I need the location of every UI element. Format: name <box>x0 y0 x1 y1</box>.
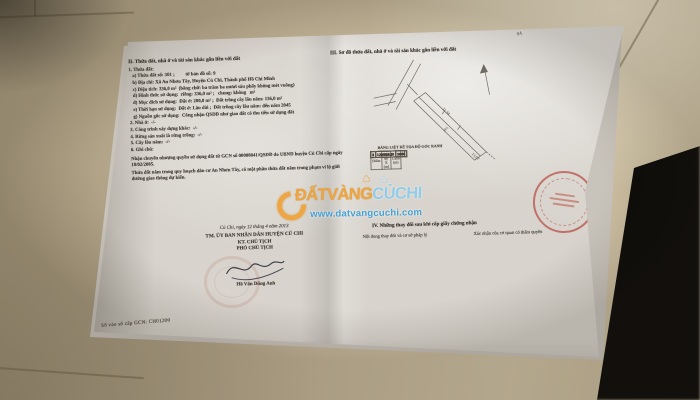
watermark-brand: ĐẤTVÀNGCỦCHI <box>294 184 422 205</box>
edge-cell: 30.61 <box>395 150 406 157</box>
page-left-body: II. Thửa đất, nhà ở và tài sản khác gắn … <box>128 53 344 186</box>
tile-grout-line <box>0 12 134 19</box>
brand-blue-text: CỦCHI <box>372 184 422 203</box>
tile-grout-line <box>0 367 144 379</box>
edge-length-label: 31.94 <box>441 106 451 116</box>
faint-round-seal <box>204 256 260 308</box>
coordinate-row: 6 1208989.85 30.61 <box>370 150 407 159</box>
photo-of-land-certificate: II. Thửa đất, nhà ở và tài sản khác gắn … <box>0 0 700 400</box>
brand-orange-text: ĐẤTVÀNG <box>294 185 372 204</box>
x-cell: 1208989.85 <box>375 151 395 158</box>
house-icon: ⌂ <box>362 171 370 184</box>
watermark-url: www.datvangcuchi.com <box>310 207 422 220</box>
house-icon: ⌂ <box>380 172 388 185</box>
certificate-book-number: Số vào sổ cấp GCN: CH01200 <box>101 312 251 329</box>
datvangcuchi-watermark: ⌂ ⌂ ĐẤTVÀNGCỦCHI www.datvangcuchi.com <box>267 166 473 234</box>
changes-column-header: Nội dung thay đổi và cơ sở pháp lý <box>336 231 454 239</box>
parcel-number-label: 301 <box>442 125 450 133</box>
north-arrow-icon <box>480 65 489 95</box>
parcel-field-lines: 1. Thửa đất: a) Thửa đất số: 301 ; tờ bả… <box>128 61 342 153</box>
tile-grout-line <box>34 0 36 17</box>
handwritten-corner-mark: 04 <box>517 32 523 38</box>
